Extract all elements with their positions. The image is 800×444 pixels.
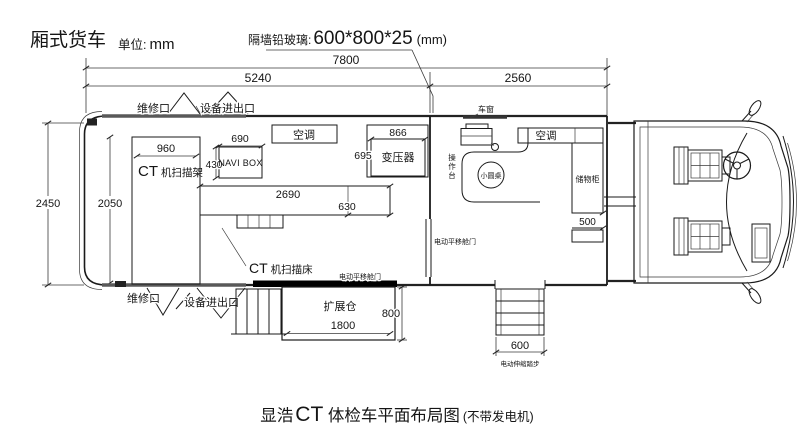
storage-cabinet-label: 储物柜 xyxy=(576,174,600,184)
ct-bed: 2690 630 CT机扫描床 xyxy=(197,184,393,276)
dimension-2050: 2050 xyxy=(95,135,125,285)
vehicle-type-label: 厢式货车 xyxy=(30,29,106,51)
title-text: 显浩CT 体检车平面布局图(不带发电机) xyxy=(260,403,533,426)
bed-pedestal xyxy=(237,215,283,228)
dim-cabinet-section: 500 xyxy=(579,217,596,228)
console-label-vertical-2: 作 xyxy=(448,161,456,171)
cab-window-label: 车窗 xyxy=(478,104,494,114)
retract-steps-label: 电动伸缩踏步 xyxy=(501,359,541,368)
transformer-label: 变压器 xyxy=(382,150,415,164)
dim-total-length: 7800 xyxy=(333,53,360,67)
dim-transformer-width: 866 xyxy=(389,127,407,139)
side-mirror-bottom xyxy=(742,282,763,305)
dim-entry-width: 600 xyxy=(511,340,529,352)
ac-unit-front: 空调 xyxy=(518,128,603,143)
ac-unit-rear: 空调 xyxy=(272,125,337,143)
passenger-seat xyxy=(674,218,730,255)
partition-glass-note: 隔墙铅玻璃:600*800*25(mm) xyxy=(248,28,447,49)
partition-door-label: 电动平移舱门 xyxy=(434,237,476,246)
dim-expansion-length: 1800 xyxy=(331,320,355,332)
side-sliding-door-label: 电动平移舱门 xyxy=(339,272,381,281)
dim-front-section: 2560 xyxy=(505,71,532,85)
console-label-vertical: 操 xyxy=(448,152,456,162)
top-door-latch xyxy=(87,119,97,126)
dim-transformer-depth: 695 xyxy=(354,150,372,162)
maintenance-port-marker xyxy=(168,93,200,114)
cab-outline xyxy=(634,121,790,283)
ac-front-label: 空调 xyxy=(536,129,557,142)
navi-box-label: NAVI BOX xyxy=(218,158,262,168)
console-icon xyxy=(461,124,499,151)
partition-wall: 电动平移舱门 xyxy=(426,116,476,285)
ct-gantry-label: CT机扫描架 xyxy=(138,163,203,180)
top-port-markers: 维修口 设备进出口 xyxy=(137,92,255,115)
ct-vehicle-floorplan-drawing: 厢式货车 单位:mm 隔墙铅玻璃:600*800*25(mm) 7800 524… xyxy=(0,0,800,444)
bottom-door-latch xyxy=(115,281,126,287)
dim-bed-width: 630 xyxy=(338,201,356,213)
steering-wheel xyxy=(724,152,751,179)
dim-gantry-width: 960 xyxy=(157,143,175,155)
rounded-counter xyxy=(462,128,540,202)
dim-inner-width: 2050 xyxy=(98,198,122,210)
small-round-table-label: 小圆桌 xyxy=(481,171,502,180)
header-annotations: 厢式货车 单位:mm 隔墙铅玻璃:600*800*25(mm) xyxy=(30,28,447,113)
bottom-port-markers: 维修口 设备进出口 xyxy=(127,288,245,318)
transformer-box: 866 695 变压器 xyxy=(354,125,428,177)
unit-label: 单位:mm xyxy=(118,36,174,53)
dim-body-width: 2450 xyxy=(36,198,60,210)
maintenance-port-label-bottom: 维修口 xyxy=(127,291,160,305)
maintenance-port-label: 维修口 xyxy=(137,101,170,115)
storage-cabinet: 储物柜 500 xyxy=(572,143,606,242)
dim-expansion-height: 800 xyxy=(382,308,400,320)
ct-bed-label: CT机扫描床 xyxy=(249,260,313,276)
driver-seat xyxy=(674,147,730,184)
dim-navi-width: 690 xyxy=(231,133,249,145)
side-mirror-top xyxy=(742,99,763,122)
equipment-port-label: 设备进出口 xyxy=(200,101,255,115)
ac-rear-label: 空调 xyxy=(293,128,315,142)
cab xyxy=(604,99,797,306)
dim-bed-length: 2690 xyxy=(276,189,300,201)
console-label-vertical-3: 台 xyxy=(448,170,456,180)
navi-box: 690 430 NAVI BOX xyxy=(206,133,266,180)
front-entry-stairs: 600 电动伸缩踏步 xyxy=(493,280,547,368)
ct-gantry: 960 CT机扫描架 xyxy=(132,137,203,284)
front-room: 车窗 操 作 台 小圆桌 空调 储物柜 500 xyxy=(448,104,606,368)
drawing-title: 显浩CT 体检车平面布局图(不带发电机) xyxy=(260,403,533,426)
bed-leader-line xyxy=(222,228,246,266)
dimension-2450: 2450 xyxy=(33,121,84,287)
drawing-canvas: 厢式货车 单位:mm 隔墙铅玻璃:600*800*25(mm) 7800 524… xyxy=(0,0,800,444)
dim-rear-section: 5240 xyxy=(245,71,272,85)
expansion-compartment: 扩展仓 1800 800 xyxy=(282,285,407,342)
small-round-table: 小圆桌 xyxy=(478,162,504,188)
expansion-label: 扩展仓 xyxy=(324,299,357,313)
equipment-port-label-bottom: 设备进出口 xyxy=(184,295,239,309)
